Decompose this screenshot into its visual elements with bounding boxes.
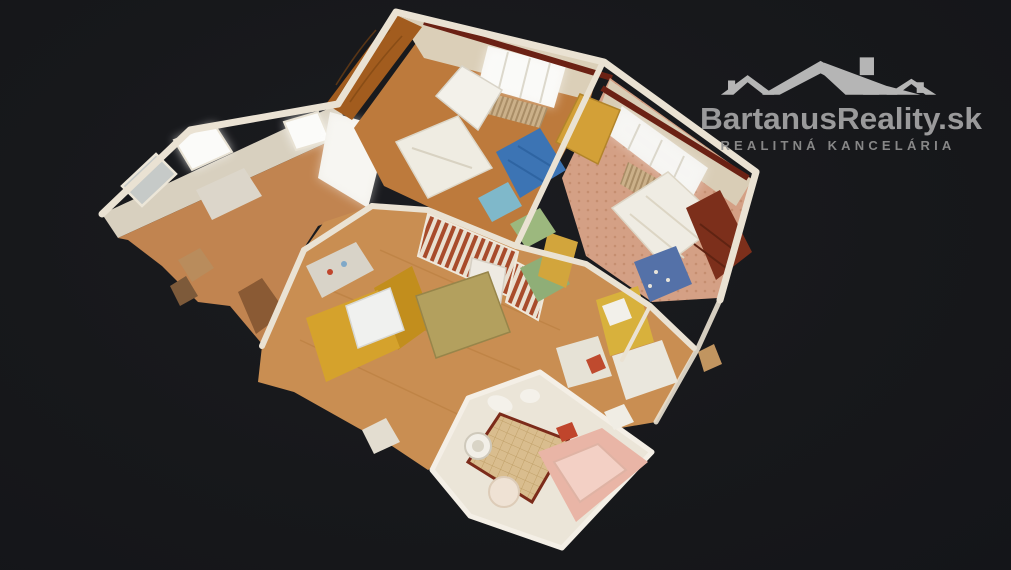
floral-dot: [666, 278, 670, 282]
rooftops-logo-icon: [721, 57, 936, 94]
kitchen-dish-2: [341, 261, 347, 267]
floral-dot: [648, 284, 652, 288]
dollhouse-3d-view[interactable]: BartanusReality.sk REALITNÁ KANCELÁRIA: [0, 0, 1011, 570]
scan-debris-study: [698, 344, 722, 372]
toilet: [520, 389, 540, 403]
bath-stool: [489, 477, 519, 507]
floral-dot: [654, 270, 658, 274]
agency-watermark: BartanusReality.sk REALITNÁ KANCELÁRIA: [700, 57, 983, 153]
brand-name: BartanusReality.sk: [700, 101, 983, 136]
tour-viewport: BartanusReality.sk REALITNÁ KANCELÁRIA: [0, 0, 1011, 570]
brand-tagline: REALITNÁ KANCELÁRIA: [720, 138, 955, 153]
kitchen-dish: [327, 269, 333, 275]
washing-machine-door: [472, 440, 484, 452]
